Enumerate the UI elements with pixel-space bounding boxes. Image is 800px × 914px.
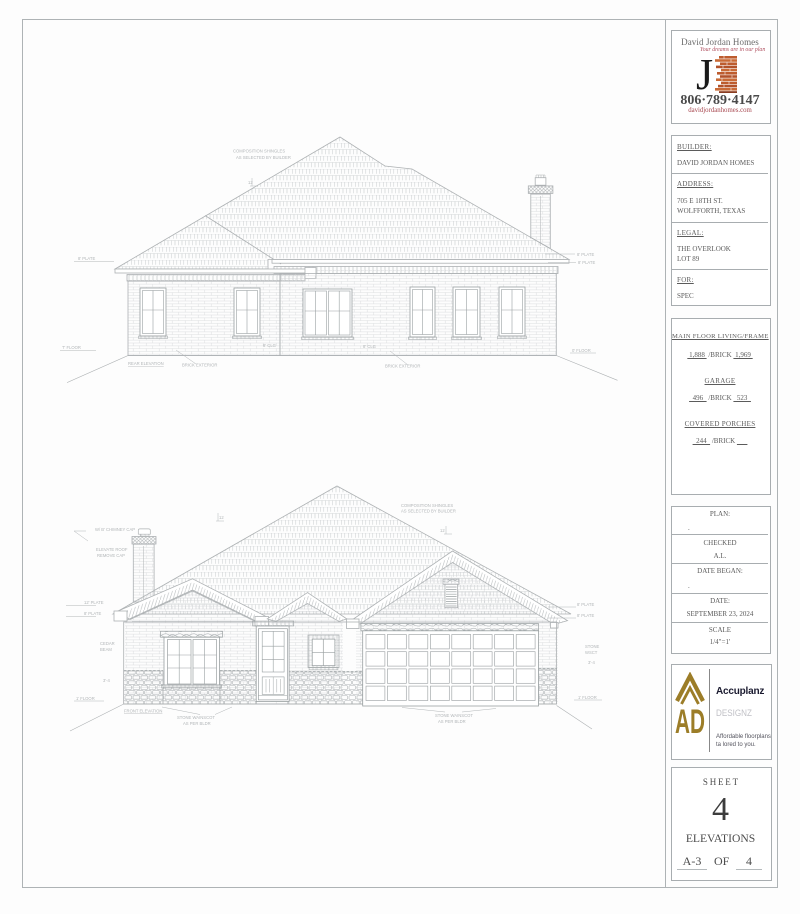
svg-text:FRONT ELEVATION: FRONT ELEVATION xyxy=(124,709,162,714)
svg-text:8' PLATE: 8' PLATE xyxy=(577,613,594,618)
svg-text:8' CLG: 8' CLG xyxy=(263,343,276,348)
svg-text:3'-4: 3'-4 xyxy=(588,660,596,665)
svg-text:STONE WAINSCOT: STONE WAINSCOT xyxy=(435,713,473,718)
svg-text:3'-4: 3'-4 xyxy=(103,678,111,683)
svg-text:REMOVE CAP: REMOVE CAP xyxy=(97,553,125,558)
svg-text:AS PER BLDR: AS PER BLDR xyxy=(183,721,211,726)
svg-text:8' PLATE: 8' PLATE xyxy=(577,602,594,607)
svg-text:8' PLATE: 8' PLATE xyxy=(578,260,595,265)
svg-text:8' PLATE: 8' PLATE xyxy=(577,252,594,257)
svg-text:J: J xyxy=(696,53,713,95)
svg-text:AS SELECTED BY BUILDER: AS SELECTED BY BUILDER xyxy=(236,155,291,160)
svg-text:BRICK EXTERIOR: BRICK EXTERIOR xyxy=(385,364,420,369)
svg-text:12: 12 xyxy=(440,528,445,533)
svg-text:BEAM: BEAM xyxy=(100,647,112,652)
svg-text:1' FLOOR: 1' FLOOR xyxy=(76,696,95,701)
svg-text:BRICK EXTERIOR: BRICK EXTERIOR xyxy=(182,363,217,368)
svg-text:ELEVATE ROOF: ELEVATE ROOF xyxy=(96,547,128,552)
svg-text:W/ B' CHIMNEY CAP: W/ B' CHIMNEY CAP xyxy=(95,527,135,532)
svg-text:8' PLATE: 8' PLATE xyxy=(84,611,101,616)
svg-text:COMPOSITION SHINGLES: COMPOSITION SHINGLES xyxy=(401,503,453,508)
svg-text:REAR ELEVATION: REAR ELEVATION xyxy=(128,361,164,366)
svg-text:12: 12 xyxy=(248,180,253,185)
svg-text:0' FLOOR: 0' FLOOR xyxy=(572,348,591,353)
svg-text:8' PLATE: 8' PLATE xyxy=(78,256,95,261)
svg-text:T' FLOOR: T' FLOOR xyxy=(62,345,81,350)
svg-text:12' PLATE: 12' PLATE xyxy=(84,600,104,605)
svg-text:12: 12 xyxy=(219,515,224,520)
svg-text:1' FLOOR: 1' FLOOR xyxy=(578,695,597,700)
svg-text:AS SELECTED BY BUILDER: AS SELECTED BY BUILDER xyxy=(401,509,456,514)
svg-text:AS PER BLDR: AS PER BLDR xyxy=(438,719,466,724)
svg-text:STONE: STONE xyxy=(585,644,600,649)
svg-text:CEDAR: CEDAR xyxy=(100,641,115,646)
svg-text:AD: AD xyxy=(675,703,705,741)
svg-text:8' CLG: 8' CLG xyxy=(363,344,376,349)
svg-text:WSCT: WSCT xyxy=(585,650,598,655)
svg-text:COMPOSITION SHINGLES: COMPOSITION SHINGLES xyxy=(233,149,285,154)
svg-text:STONE WAINSCOT: STONE WAINSCOT xyxy=(177,715,215,720)
